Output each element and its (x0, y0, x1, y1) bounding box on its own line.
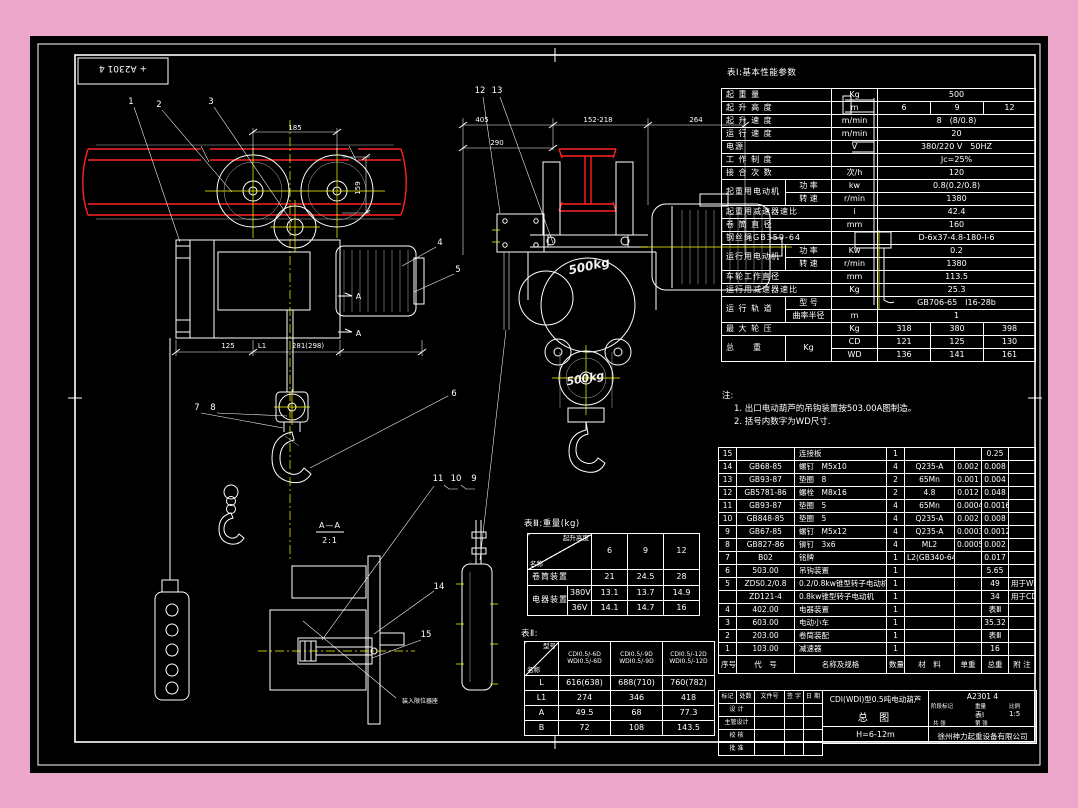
table2-dimensions: 型号 名称 CDI0.5/-6DWDI0.5/-6D CDI0.5/-9DWDI… (524, 641, 715, 736)
bom-note (1009, 617, 1036, 630)
bom-code: GB93-87 (737, 500, 795, 513)
bom-row: 4 402.00 电器装置 1 表Ⅲ (719, 604, 1036, 617)
bom-material (905, 448, 955, 461)
t1-unit: m (832, 310, 878, 323)
bom-note (1009, 526, 1036, 539)
t2-col: CDI0.5/-12DWDI0.5/-12D (663, 642, 715, 676)
t3-val: 21 (592, 570, 628, 586)
t1-unit: kw (832, 180, 878, 193)
t3-name: 卷筒装置 (528, 570, 592, 586)
t2-val: 418 (663, 691, 715, 706)
bom-qty: 4 (887, 526, 905, 539)
bom-code: 503.00 (737, 565, 795, 578)
t1-unit: i (832, 206, 878, 219)
bom-name: 铭牌 (795, 552, 887, 565)
titleblock-title-box: CDⅠ(WDⅠ)型0.5吨电动葫芦 总 图 (822, 690, 929, 727)
tb-head-count: 处数 (737, 691, 755, 704)
bom-no: 14 (719, 461, 737, 474)
balloon-10: 10 (451, 474, 462, 484)
t2-col-wd: WDI0.5/-9D (613, 659, 660, 666)
bom-material: 4.8 (905, 487, 955, 500)
bom-row: 15 连接板 1 0.25 (719, 448, 1036, 461)
detail-note: 装入限位器座 (402, 697, 438, 705)
bom-qty: 4 (887, 461, 905, 474)
bom-total-weight: 0.004 (982, 474, 1009, 487)
t2-col: CDI0.5/-6DWDI0.5/-6D (559, 642, 611, 676)
t1-val: 380 (931, 323, 984, 336)
bom-code: 402.00 (737, 604, 795, 617)
t1-name: 钢丝绳GB359-64 (722, 232, 832, 245)
t1-val: 6 (878, 102, 931, 115)
side-view-pendant-box (480, 214, 544, 560)
t1-val: 1380 (878, 258, 1036, 271)
t2-val: 274 (559, 691, 611, 706)
bom-unit-weight (955, 591, 982, 604)
bom-qty: 1 (887, 578, 905, 591)
bom-code: 203.00 (737, 630, 795, 643)
t1-name: 运行用减速器速比 (722, 284, 832, 297)
cast-mark-500kg-top: 500kg (567, 255, 611, 277)
bom-note (1009, 565, 1036, 578)
front-view-hoist-body (176, 240, 424, 338)
t1-val: Jc=25% (878, 154, 1036, 167)
t1-name: 接 合 次 数 (722, 167, 832, 180)
bom-row: ZD121-4 0.8kw锥型转子电动机 1 34 用于CD (719, 591, 1036, 604)
bom-row: 8 GB827-86 铆钉 3x6 4 ML2 0.0005 0.002 (719, 539, 1036, 552)
bom-unit-weight: 0.001 (955, 474, 982, 487)
bom-note (1009, 630, 1036, 643)
cast-mark-500kg-bottom: 500kg (565, 369, 605, 388)
bom-row: 5 ZDS0.2/0.8 0.2/0.8kw锥型转子电动机 1 49 用于WD (719, 578, 1036, 591)
bom-no: 10 (719, 513, 737, 526)
bom-total-weight: 表Ⅲ (982, 630, 1009, 643)
bom-code: ZDS0.2/0.8 (737, 578, 795, 591)
bom-row: 2 203.00 卷筒装配 1 表Ⅲ (719, 630, 1036, 643)
t2-val: 616(638) (559, 676, 611, 691)
t1-val: 161 (984, 349, 1036, 362)
t1-val: 500 (878, 89, 1036, 102)
bom-name: 电器装置 (795, 604, 887, 617)
bom-total-weight: 34 (982, 591, 1009, 604)
bom-name: 螺钉 M5x10 (795, 461, 887, 474)
t1-name: 起重用电动机 (722, 180, 786, 206)
bom-material: Q235-A (905, 513, 955, 526)
bom-name: 螺栓 M8x16 (795, 487, 887, 500)
t1-val: 141 (931, 349, 984, 362)
bom-qty: 1 (887, 448, 905, 461)
bom-code (737, 448, 795, 461)
t2-name: A (525, 706, 559, 721)
t2-val: 77.3 (663, 706, 715, 721)
t1-unit: mm (832, 219, 878, 232)
t1-unit: Kw (832, 245, 878, 258)
bom-no: 3 (719, 617, 737, 630)
drawing-notes: 注: 1. 出口电动葫芦的吊钩装置按503.00A图制造。 2. 括号内数字为W… (722, 390, 916, 429)
bom-total-weight: 16 (982, 643, 1009, 656)
bom-head-material: 材 料 (905, 656, 955, 674)
bom-head-no: 序号 (719, 656, 737, 674)
table2-corner-top: 型号 (543, 643, 556, 650)
t1-unit: r/min (832, 258, 878, 271)
t1-unit: r/min (832, 193, 878, 206)
scale-label: 比例 (1009, 702, 1020, 710)
bom-no: 9 (719, 526, 737, 539)
balloon-9: 9 (471, 474, 476, 484)
titleblock-number-box: A2301 4 阶段标记 重量 比例 表Ⅰ 1:5 共 张 第 张 (928, 690, 1037, 727)
t1-val: 9 (931, 102, 984, 115)
t1-name: 总 重 (722, 336, 786, 362)
bom-no: 8 (719, 539, 737, 552)
table3-title: 表Ⅲ:重量(kg) (524, 517, 580, 529)
balloon-5: 5 (455, 265, 460, 275)
tb-head-docno: 文件号 (755, 691, 785, 704)
bom-total-weight: 0.25 (982, 448, 1009, 461)
bom-total-weight: 0.017 (982, 552, 1009, 565)
t1-sub: 功 率 (786, 180, 832, 193)
table3-weights: 起升高度 名称 6 9 12 卷筒装置2124.528 电器装置380V13.1… (527, 533, 700, 616)
drawing-number: A2301 4 (929, 692, 1036, 701)
t2-val: 346 (611, 691, 663, 706)
notes-label: 注: (722, 390, 916, 403)
note-line-2: 2. 括号内数字为WD尺寸. (722, 416, 916, 429)
bom-note (1009, 474, 1036, 487)
t2-col: CDI0.5/-9DWDI0.5/-9D (611, 642, 663, 676)
balloon-callouts: 1 2 3 4 5 6 7 8 9 10 11 12 13 14 15 (128, 86, 553, 658)
bom-note (1009, 448, 1036, 461)
bom-note: 用于WD (1009, 578, 1036, 591)
table2-corner-bottom: 名称 (527, 667, 540, 674)
bom-row: 7 B02 铭牌 1 L2(GB340-64) 0.017 (719, 552, 1036, 565)
bom-note (1009, 513, 1036, 526)
dim-L1: L1 (258, 342, 266, 350)
t1-unit: m (832, 102, 878, 115)
corner-stamp-number: + A2301 4 (83, 63, 163, 73)
bom-name: 连接板 (795, 448, 887, 461)
table3-corner-bottom: 名称 (530, 561, 543, 568)
bom-total-weight: 0.0016 (982, 500, 1009, 513)
t1-val: 0.8(0.2/0.8) (878, 180, 1036, 193)
titleblock-span-box: H=6-12m (822, 726, 929, 744)
t1-val: 1 (878, 310, 1036, 323)
bom-material (905, 643, 955, 656)
scale-value: 1:5 (1009, 710, 1020, 718)
bom-unit-weight (955, 604, 982, 617)
bom-note (1009, 539, 1036, 552)
t1-val: 130 (984, 336, 1036, 349)
bom-unit-weight: 0.012 (955, 487, 982, 500)
t3-val: 14.1 (592, 601, 628, 616)
bom-name: 铆钉 3x6 (795, 539, 887, 552)
bom-qty: 1 (887, 643, 905, 656)
t1-val: 318 (878, 323, 931, 336)
bom-unit-weight: 0.002 (955, 513, 982, 526)
bom-note (1009, 487, 1036, 500)
bom-no: 15 (719, 448, 737, 461)
balloon-8: 8 (210, 403, 215, 413)
t1-val: 8 (8/0.8) (878, 115, 1036, 128)
tb-head-mark: 标记 (719, 691, 737, 704)
t1-val: 121 (878, 336, 931, 349)
t1-name: 卷 筒 直 径 (722, 219, 832, 232)
bom-name: 电动小车 (795, 617, 887, 630)
bom-no: 12 (719, 487, 737, 500)
t1-name: 最 大 轮 压 (722, 323, 832, 336)
bom-unit-weight (955, 630, 982, 643)
side-view-dimensions: 405 152-218 264 290 (459, 116, 749, 255)
bom-no: 5 (719, 578, 737, 591)
bom-row: 9 GB67-85 螺钉 M5x12 4 Q235-A 0.0003 0.001… (719, 526, 1036, 539)
bom-qty: 1 (887, 565, 905, 578)
front-view-trolley (205, 148, 385, 252)
t2-val: 68 (611, 706, 663, 721)
balloon-3: 3 (208, 97, 213, 107)
dim-152-218: 152-218 (583, 116, 612, 124)
bom-note (1009, 552, 1036, 565)
table3-corner: 起升高度 名称 (528, 534, 592, 570)
bom-code: 103.00 (737, 643, 795, 656)
note-line-1: 1. 出口电动葫芦的吊钩装置按503.00A图制造。 (722, 403, 916, 416)
t1-val: GB706-65 Ⅰ16-28b (878, 297, 1036, 310)
t2-name: L1 (525, 691, 559, 706)
t1-name: 运 行 轨 道 (722, 297, 786, 323)
t1-val: 160 (878, 219, 1036, 232)
t2-name: B (525, 721, 559, 736)
bom-total-weight: 35.32 (982, 617, 1009, 630)
t1-sub: 曲率半径 (786, 310, 832, 323)
bom-head-unit-weight: 单重 (955, 656, 982, 674)
bom-material (905, 617, 955, 630)
t1-unit: Kg (832, 323, 878, 336)
dim-125: 125 (221, 342, 234, 350)
t1-unit: CD (832, 336, 878, 349)
t2-val: 143.5 (663, 721, 715, 736)
bom-material (905, 604, 955, 617)
pendant-control-station (155, 338, 189, 700)
tb-field-design: 设 计 (719, 704, 755, 717)
bom-row: 1 103.00 减速器 1 16 (719, 643, 1036, 656)
bom-no: 6 (719, 565, 737, 578)
section-cut-mark-a-top: A (356, 292, 362, 301)
t3-val: 24.5 (628, 570, 664, 586)
drawing-subtitle: 总 图 (823, 709, 928, 724)
dim-264: 264 (689, 116, 703, 124)
bom-no: 13 (719, 474, 737, 487)
bom-note (1009, 643, 1036, 656)
t1-name: 起重用减速器速比 (722, 206, 832, 219)
bom-material (905, 578, 955, 591)
bom-unit-weight: 0.0005 (955, 539, 982, 552)
bom-row: 14 GB68-85 螺钉 M5x10 4 Q235-A 0.002 0.008 (719, 461, 1036, 474)
bom-head-code: 代 号 (737, 656, 795, 674)
t1-unit: mm (832, 271, 878, 284)
bom-name: 螺钉 M5x12 (795, 526, 887, 539)
balloon-2: 2 (156, 100, 161, 110)
bom-material (905, 565, 955, 578)
bom-material: 65Mn (905, 500, 955, 513)
bom-code: GB5781-86 (737, 487, 795, 500)
bom-note (1009, 604, 1036, 617)
t2-col-wd: WDI0.5/-12D (665, 659, 712, 666)
cad-screenshot: { "colors": {"background": "#eba6c9", "i… (0, 0, 1078, 808)
t3-name: 电器装置 (528, 586, 568, 616)
bom-code: GB67-85 (737, 526, 795, 539)
balloon-15: 15 (421, 630, 432, 640)
bom-code: GB848-85 (737, 513, 795, 526)
bom-material: ML2 (905, 539, 955, 552)
bom-unit-weight (955, 617, 982, 630)
stage-label: 阶段标记 (931, 702, 953, 710)
tb-field-check: 校 核 (719, 730, 755, 743)
table2-corner: 型号 名称 (525, 642, 559, 676)
bom-head-name: 名称及规格 (795, 656, 887, 674)
side-view-pendant-handle (456, 520, 498, 690)
t1-sub: 转 速 (786, 258, 832, 271)
t1-name: 电源 (722, 141, 832, 154)
bom-code: GB93-87 (737, 474, 795, 487)
bom-parts-list: 15 连接板 1 0.25 14 GB68-85 螺钉 M5x10 4 Q235… (718, 447, 1036, 674)
bom-total-weight: 0.008 (982, 513, 1009, 526)
front-view-hook-assembly (272, 120, 311, 560)
bom-name: 0.2/0.8kw锥型转子电动机 (795, 578, 887, 591)
bom-unit-weight (955, 552, 982, 565)
dim-159: 159 (354, 181, 362, 194)
t2-val: 108 (611, 721, 663, 736)
bom-unit-weight (955, 448, 982, 461)
bom-code: ZD121-4 (737, 591, 795, 604)
t1-val: 136 (878, 349, 931, 362)
bom-no (719, 591, 737, 604)
bom-no: 1 (719, 643, 737, 656)
t1-name: 运 行 速 度 (722, 128, 832, 141)
bom-qty: 4 (887, 500, 905, 513)
t1-name: 运行用电动机 (722, 245, 786, 271)
t3-col: 9 (628, 534, 664, 570)
t1-unit (832, 154, 878, 167)
tb-field-chief: 主管设计 (719, 717, 755, 730)
bom-note (1009, 500, 1036, 513)
t1-val: 120 (878, 167, 1036, 180)
side-view-hoist-body: 500kg (519, 252, 656, 365)
balloon-7: 7 (194, 403, 199, 413)
bom-no: 2 (719, 630, 737, 643)
balloon-13: 13 (492, 86, 503, 96)
t1-val: 125 (931, 336, 984, 349)
bom-name: 减速器 (795, 643, 887, 656)
bom-total-weight: 49 (982, 578, 1009, 591)
balloon-12: 12 (475, 86, 486, 96)
bom-total-weight: 5.65 (982, 565, 1009, 578)
bom-name: 垫圈 8 (795, 474, 887, 487)
bom-note (1009, 461, 1036, 474)
table1-title: 表Ⅰ:基本性能参数 (727, 66, 796, 78)
bom-qty: 4 (887, 539, 905, 552)
titleblock-company-box: 徐州神力起重设备有限公司 (928, 726, 1037, 744)
bom-code: GB827-86 (737, 539, 795, 552)
drawing-title: CDⅠ(WDⅠ)型0.5吨电动葫芦 (823, 694, 928, 705)
bom-no: 7 (719, 552, 737, 565)
bom-row: 6 503.00 吊钩装置 1 5.65 (719, 565, 1036, 578)
tb-field-approve: 批 准 (719, 743, 755, 756)
t2-val: 760(782) (663, 676, 715, 691)
bom-total-weight: 表Ⅲ (982, 604, 1009, 617)
t2-val: 72 (559, 721, 611, 736)
t3-val: 13.7 (628, 586, 664, 601)
bom-row: 11 GB93-87 垫圈 5 4 65Mn 0.0004 0.0016 (719, 500, 1036, 513)
table3-corner-top: 起升高度 (563, 535, 589, 542)
section-label: A—A (319, 521, 341, 530)
bom-material (905, 591, 955, 604)
section-scale: 2:1 (322, 536, 338, 545)
bom-qty: 1 (887, 552, 905, 565)
bom-row: 3 603.00 电动小车 1 35.32 (719, 617, 1036, 630)
t1-sub: 型 号 (786, 297, 832, 310)
bom-total-weight: 0.008 (982, 461, 1009, 474)
balloon-6: 6 (451, 389, 456, 399)
t1-val: 1380 (878, 193, 1036, 206)
section-cut-mark-a-bottom: A (356, 329, 362, 338)
t3-sub: 380V (568, 586, 592, 601)
t2-val: 688(710) (611, 676, 663, 691)
weight-label: 重量 (975, 702, 986, 710)
t1-unit: Kg (832, 284, 878, 297)
dim-281: 281(298) (292, 342, 324, 350)
t1-unit: 次/h (832, 167, 878, 180)
bom-qty: 2 (887, 487, 905, 500)
side-view-beam-section (559, 149, 616, 211)
t1-val: 25.3 (878, 284, 1036, 297)
t1-name: 工 作 制 度 (722, 154, 832, 167)
t1-name: 起 升 速 度 (722, 115, 832, 128)
t1-name: 起 升 高 度 (722, 102, 832, 115)
bom-note: 用于CD (1009, 591, 1036, 604)
bom-qty: 4 (887, 513, 905, 526)
t3-col: 6 (592, 534, 628, 570)
t3-val: 13.1 (592, 586, 628, 601)
titleblock: 标记 处数 文件号 签 字 日 期 设 计 主管设计 校 核 批 准 CDⅠ(W… (718, 690, 1035, 742)
bom-qty: 2 (887, 474, 905, 487)
tb-head-date: 日 期 (804, 691, 823, 704)
bom-material: Q235-A (905, 526, 955, 539)
balloon-14: 14 (434, 582, 445, 592)
t1-sub: 转 速 (786, 193, 832, 206)
bom-total-weight: 0.002 (982, 539, 1009, 552)
bom-material: L2(GB340-64) (905, 552, 955, 565)
bom-qty: 1 (887, 591, 905, 604)
bom-row: 13 GB93-87 垫圈 8 2 65Mn 0.001 0.004 (719, 474, 1036, 487)
span-range: H=6-12m (823, 730, 928, 739)
table2-title: 表Ⅱ: (521, 627, 538, 639)
t2-name: L (525, 676, 559, 691)
t3-col: 12 (664, 534, 700, 570)
t3-sub: 36V (568, 601, 592, 616)
bom-total-weight: 0.0012 (982, 526, 1009, 539)
company-name: 徐州神力起重设备有限公司 (929, 731, 1036, 742)
bom-unit-weight: 0.0003 (955, 526, 982, 539)
t1-unit: Kg (832, 89, 878, 102)
t1-val: 42.4 (878, 206, 1036, 219)
bom-header-row: 序号 代 号 名称及规格 数量 材 料 单重 总重 附 注 (719, 656, 1036, 674)
t1-unit (832, 297, 878, 310)
bom-qty: 1 (887, 604, 905, 617)
balloon-1: 1 (128, 97, 133, 107)
t1-val: 12 (984, 102, 1036, 115)
bom-unit-weight: 0.0004 (955, 500, 982, 513)
front-view-small-hook (219, 485, 244, 544)
t1-name: 车轮工作直径 (722, 271, 832, 284)
t1-val: 0.2 (878, 245, 1036, 258)
t1-val: 380/220 V 50HZ (878, 141, 1036, 154)
dim-290: 290 (490, 139, 503, 147)
